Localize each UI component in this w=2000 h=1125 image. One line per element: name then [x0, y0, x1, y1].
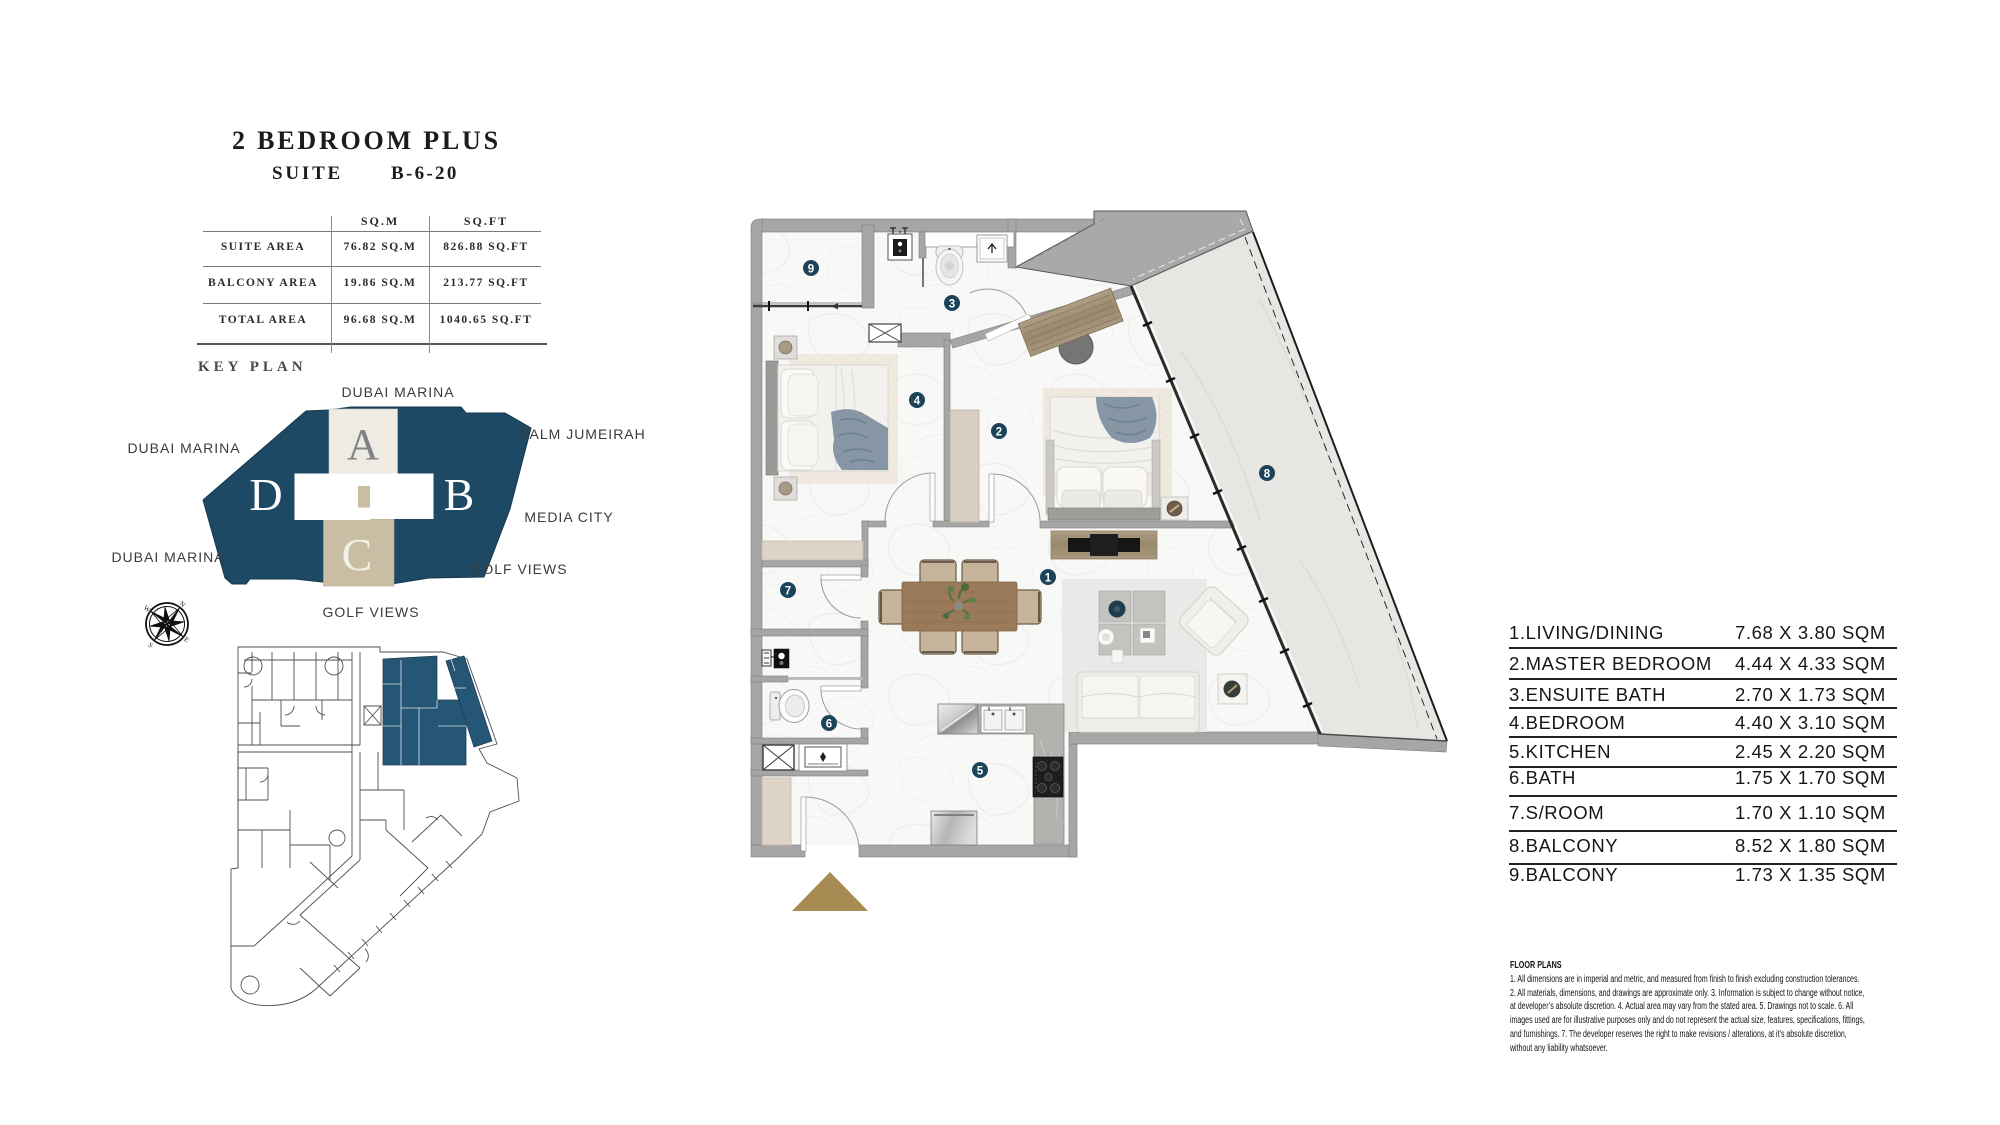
svg-text:4: 4	[914, 396, 921, 408]
svg-text:7: 7	[785, 586, 791, 598]
svg-text:B: B	[444, 469, 475, 520]
svg-text:3: 3	[949, 299, 955, 311]
svg-text:8: 8	[1264, 469, 1271, 481]
svg-text:S: S	[146, 641, 154, 650]
svg-text:W: W	[142, 604, 152, 615]
svg-text:D: D	[249, 469, 282, 520]
svg-text:C: C	[342, 529, 373, 580]
svg-text:2: 2	[996, 427, 1002, 439]
svg-text:6: 6	[826, 719, 832, 731]
svg-text:9: 9	[808, 264, 814, 276]
svg-text:1: 1	[1045, 573, 1052, 585]
svg-text:5: 5	[977, 766, 984, 778]
svg-text:A: A	[347, 420, 379, 469]
